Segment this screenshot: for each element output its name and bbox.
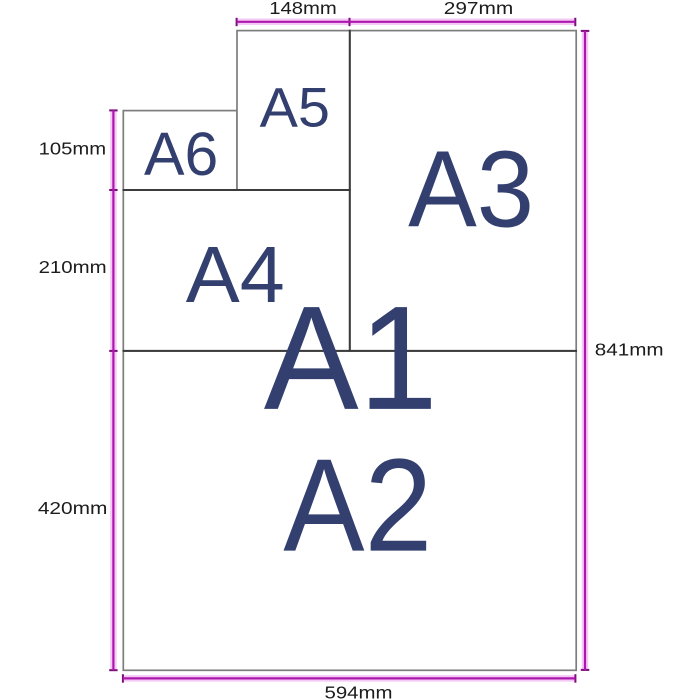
svg-text:297mm: 297mm xyxy=(444,0,514,18)
svg-text:148mm: 148mm xyxy=(269,0,337,18)
svg-text:A5: A5 xyxy=(260,77,330,139)
svg-text:105mm: 105mm xyxy=(39,139,107,159)
svg-text:A3: A3 xyxy=(408,128,534,249)
svg-text:A2: A2 xyxy=(283,432,432,579)
svg-text:A1: A1 xyxy=(264,276,438,441)
svg-text:594mm: 594mm xyxy=(325,683,393,700)
svg-text:420mm: 420mm xyxy=(38,498,108,518)
svg-text:210mm: 210mm xyxy=(39,257,107,277)
svg-text:A6: A6 xyxy=(144,120,218,188)
svg-text:841mm: 841mm xyxy=(595,339,664,359)
